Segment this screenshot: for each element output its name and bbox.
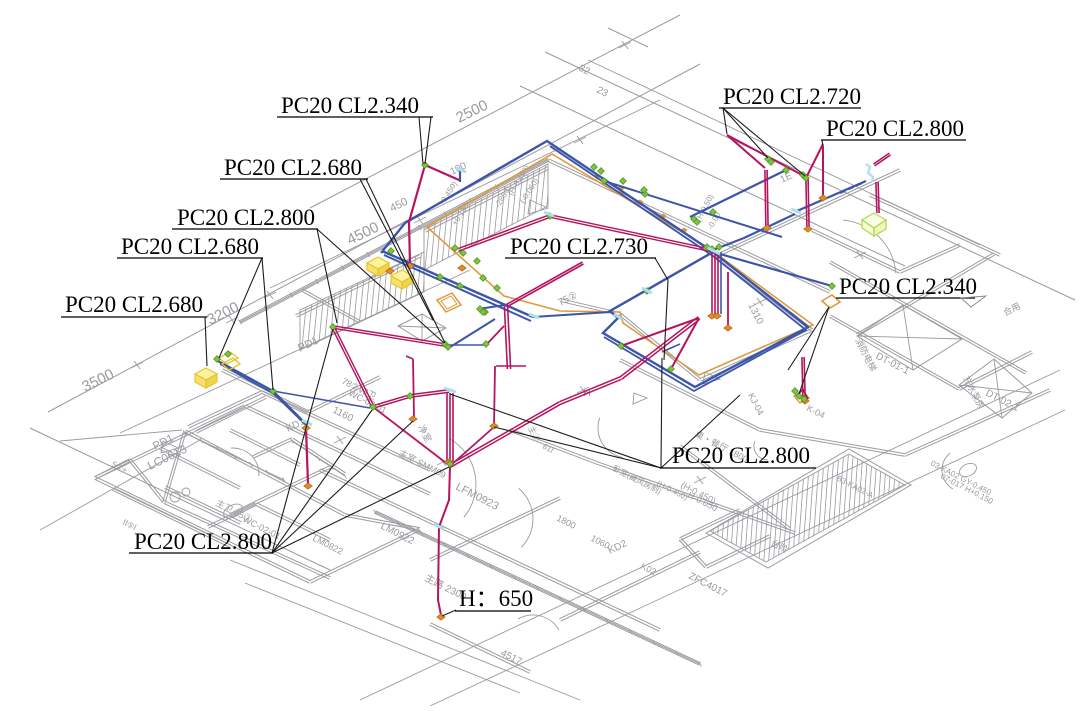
svg-text:PC20 CL2.800: PC20 CL2.800 xyxy=(177,205,315,230)
svg-text:PC20 CL2.680: PC20 CL2.680 xyxy=(121,234,259,259)
svg-text:PC20 CL2.680: PC20 CL2.680 xyxy=(65,292,203,317)
svg-text:PC20 CL2.800: PC20 CL2.800 xyxy=(134,529,272,554)
svg-text:PC20 CL2.340: PC20 CL2.340 xyxy=(281,93,419,118)
svg-text:PC20 CL2.730: PC20 CL2.730 xyxy=(510,234,648,259)
svg-text:PC20 CL2.340: PC20 CL2.340 xyxy=(839,274,977,299)
svg-text:PC20 CL2.720: PC20 CL2.720 xyxy=(723,84,861,109)
svg-text:PC20 CL2.800: PC20 CL2.800 xyxy=(672,443,810,468)
svg-text:PC20 CL2.800: PC20 CL2.800 xyxy=(826,116,964,141)
svg-text:H：650: H：650 xyxy=(459,586,533,611)
svg-text:PC20 CL2.680: PC20 CL2.680 xyxy=(224,155,362,180)
